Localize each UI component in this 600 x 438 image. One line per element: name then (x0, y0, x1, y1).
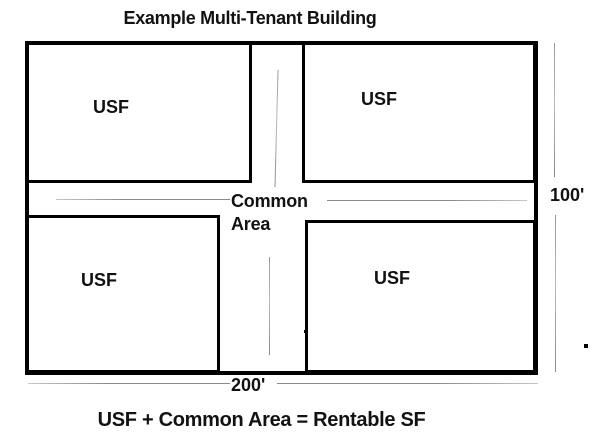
usf-room-top-left (26, 41, 252, 183)
rentable-sf-formula: USF + Common Area = Rentable SF (0, 409, 523, 432)
usf-label-bottom-left: USF (81, 270, 117, 291)
width-dimension-line-left (28, 383, 230, 384)
ink-dot-right-margin (584, 344, 588, 348)
usf-label-top-left: USF (93, 97, 129, 118)
usf-room-bottom-left (26, 215, 220, 373)
height-dimension-line-upper (554, 43, 555, 177)
usf-label-bottom-right: USF (374, 268, 410, 289)
corridor-leader-line-right (327, 200, 527, 201)
width-dimension-line-right (277, 383, 538, 384)
multi-tenant-building-diagram: Example Multi-Tenant Building USF USF US… (0, 0, 600, 438)
common-area-label-line1: Common (231, 191, 308, 212)
ink-dot-inner (304, 330, 307, 333)
usf-label-top-right: USF (361, 89, 397, 110)
height-dimension-label: 100' (550, 185, 584, 206)
corridor-leader-line-bottom (269, 257, 270, 355)
diagram-title: Example Multi-Tenant Building (0, 8, 500, 29)
corridor-leader-line-left (56, 199, 230, 200)
height-dimension-line-lower (555, 215, 556, 372)
common-area-label-line2: Area (231, 214, 270, 235)
usf-room-top-right (302, 41, 536, 183)
usf-room-bottom-right (305, 220, 536, 373)
width-dimension-label: 200' (231, 375, 265, 396)
